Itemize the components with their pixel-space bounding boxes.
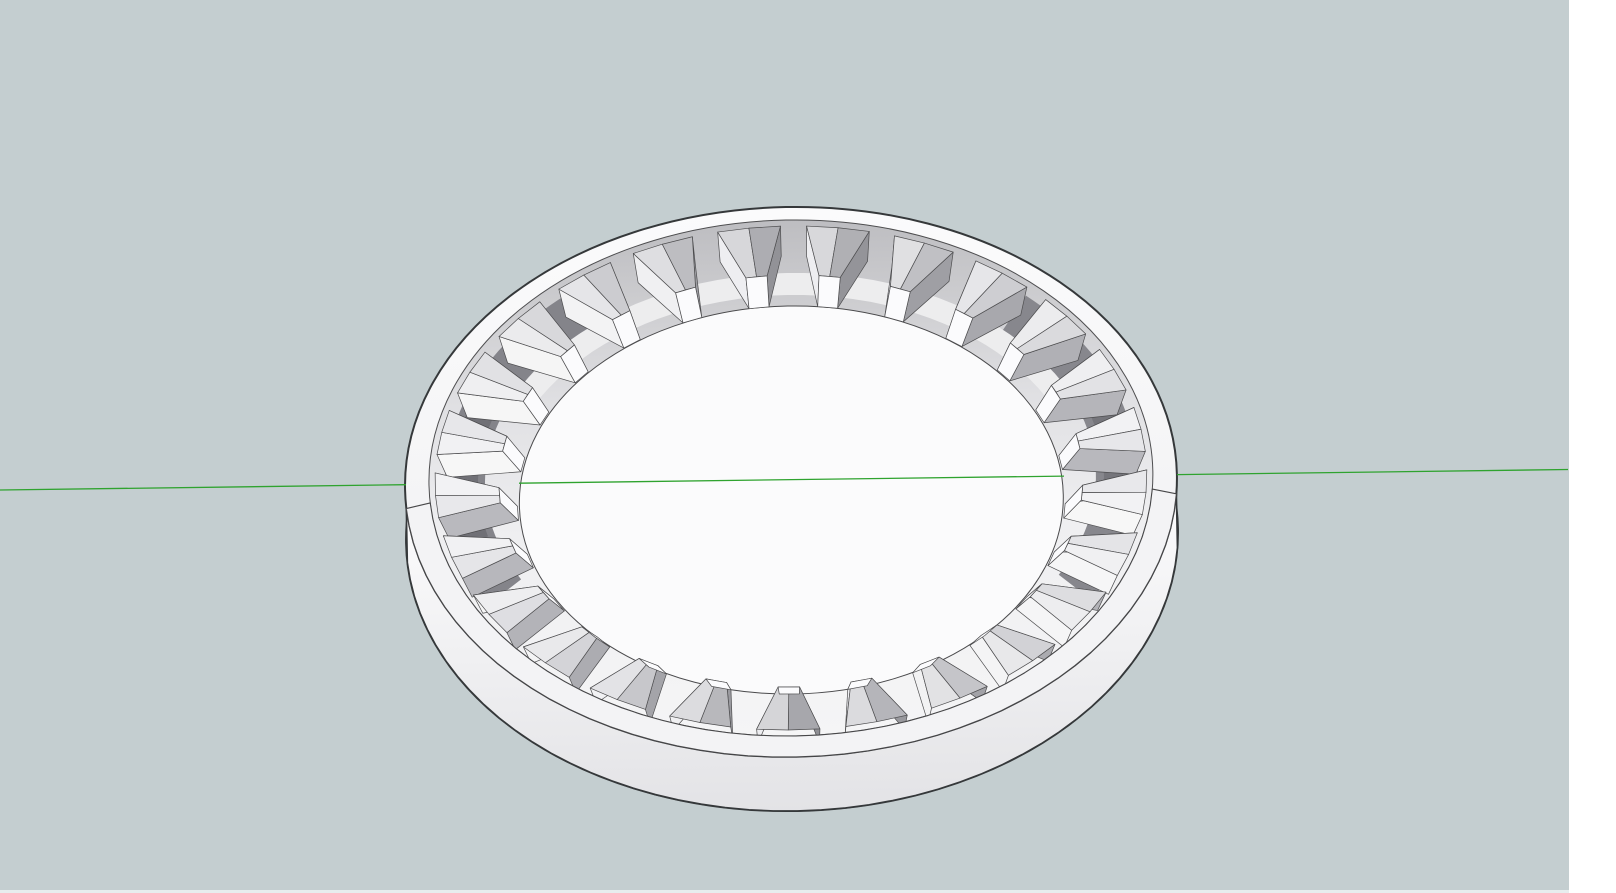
right-margin [1569, 0, 1616, 893]
ring-gear-model[interactable] [400, 200, 1183, 819]
sketchup-window [0, 0, 1616, 893]
scene-svg[interactable] [0, 0, 1569, 893]
3d-viewport[interactable] [0, 0, 1569, 893]
